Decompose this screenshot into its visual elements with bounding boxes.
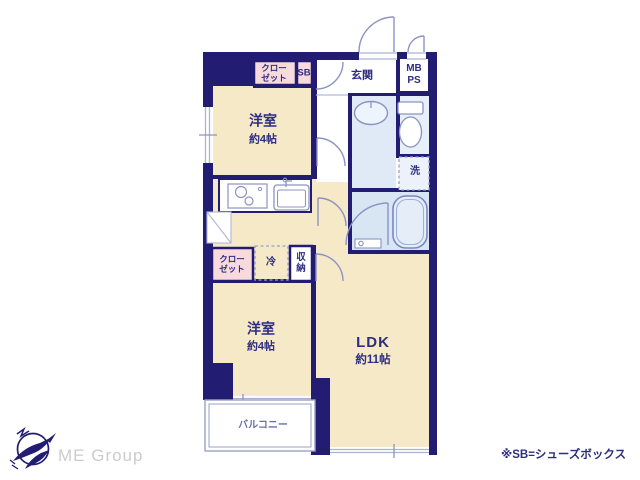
folding-door-box xyxy=(207,212,231,243)
closet-bottom-label: クローゼット xyxy=(219,254,245,274)
storage-label: 収納 xyxy=(296,252,306,274)
bath-counter-icon xyxy=(355,239,381,248)
closet-top-label: クローゼット xyxy=(261,63,287,83)
bathtub-icon xyxy=(393,196,427,248)
hall-floor xyxy=(316,93,348,182)
shoe-box-label: SB xyxy=(297,67,310,78)
bedroom-top-floor xyxy=(213,86,311,175)
toilet-icon xyxy=(398,102,423,147)
washer-label: 洗 xyxy=(410,166,420,178)
ldk-size: 約11帖 xyxy=(355,354,390,368)
balcony-label: バルコニー xyxy=(238,420,288,432)
shoebox-footnote: ※SB=シューズボックス xyxy=(501,446,626,462)
washbasin-icon xyxy=(355,102,388,125)
entrance-label: 玄関 xyxy=(351,70,373,83)
meter-box-label: MBPS xyxy=(406,63,422,87)
bedroom-top-name: 洋室 xyxy=(249,113,277,130)
me-group-logo xyxy=(10,429,56,469)
kitchen-counter xyxy=(219,178,311,212)
floorplan-page: クローゼット SB 玄関 MBPS 洋室 約4帖 洗 冷 収納 クローゼット 洋… xyxy=(0,0,640,480)
bedroom-bottom-name: 洋室 xyxy=(247,321,275,338)
bedroom-bottom-size: 約4帖 xyxy=(247,341,275,354)
ldk-name: LDK xyxy=(356,334,390,352)
floorplan-drawing xyxy=(0,0,640,480)
brand-name: ME Group xyxy=(58,446,143,466)
bedroom-top-size: 約4帖 xyxy=(249,134,277,147)
fridge-label: 冷 xyxy=(266,257,276,269)
